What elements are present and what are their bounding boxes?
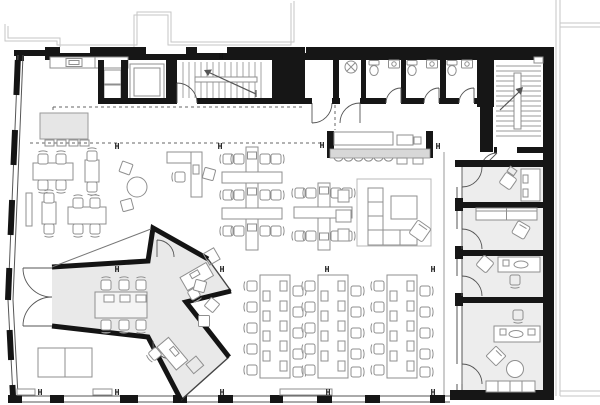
bench-row <box>302 275 364 378</box>
column-marker: H <box>115 388 120 397</box>
floor-plan: H H H H H H H H H H H H H H <box>0 0 600 405</box>
kitchen-counter <box>50 57 128 68</box>
toilet-icon <box>447 61 457 76</box>
bench-row <box>244 275 306 378</box>
column-marker: H <box>38 388 43 397</box>
column-marker: H <box>326 388 331 397</box>
toilet-icon <box>369 61 379 76</box>
column-marker: H <box>325 265 330 274</box>
column-marker: H <box>431 388 436 397</box>
bar-counter <box>327 131 433 164</box>
column-marker: H <box>115 265 120 274</box>
column-marker: H <box>436 142 441 151</box>
bench-rows <box>244 275 433 378</box>
conference-table <box>95 277 147 333</box>
column-marker: H <box>220 388 225 397</box>
desk-cluster <box>220 147 284 250</box>
column-marker: H <box>320 141 325 150</box>
service-core <box>50 47 543 169</box>
floor-plan-canvas: H H H H H H H H H H H H H H <box>0 0 600 405</box>
casual-seating <box>26 148 147 237</box>
sink-icon <box>389 60 400 68</box>
shower-fixture-icon <box>345 61 357 73</box>
sink-icon <box>427 60 438 68</box>
column-marker: H <box>115 142 120 151</box>
storage-cabinets <box>104 70 121 99</box>
reception-desk <box>167 152 216 197</box>
bench-row <box>371 275 433 378</box>
island-table <box>40 113 89 146</box>
stair-west <box>183 62 261 98</box>
column-marker: H <box>431 265 436 274</box>
office-strip <box>444 152 543 395</box>
column-marker: H <box>220 265 225 274</box>
left-wall <box>8 55 23 396</box>
column-marker: H <box>218 142 223 151</box>
toilet-icon <box>407 61 417 76</box>
sink-icon <box>462 60 473 68</box>
lounge-daybed <box>38 348 92 377</box>
right-wall <box>543 47 554 400</box>
column-marker: H <box>219 52 224 61</box>
